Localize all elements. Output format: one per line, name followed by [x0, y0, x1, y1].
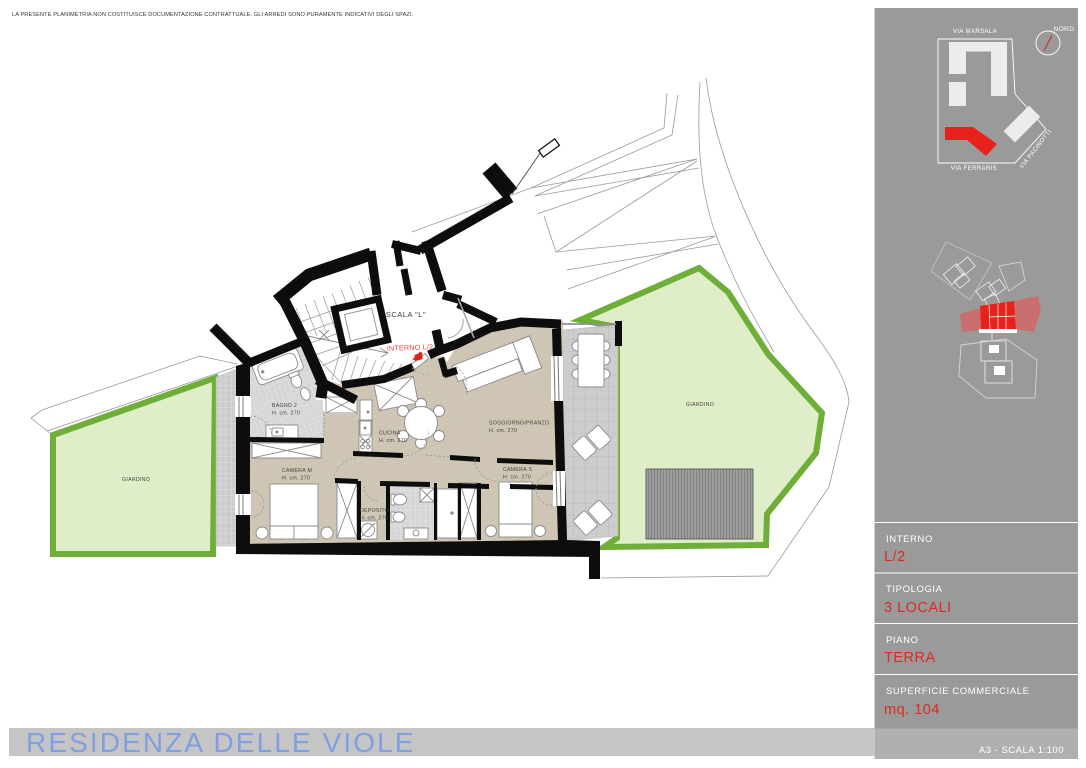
svg-text:VIA MARSALA: VIA MARSALA — [953, 29, 997, 35]
svg-text:A3 - SCALA 1:100: A3 - SCALA 1:100 — [979, 745, 1064, 756]
svg-text:L/2: L/2 — [884, 549, 906, 565]
svg-text:PIANO: PIANO — [886, 635, 919, 646]
svg-text:mq. 104: mq. 104 — [884, 702, 940, 718]
svg-text:3 LOCALI: 3 LOCALI — [884, 600, 952, 616]
svg-text:NORD: NORD — [1054, 26, 1075, 33]
svg-text:TIPOLOGIA: TIPOLOGIA — [886, 584, 943, 595]
svg-text:TERRA: TERRA — [884, 650, 936, 666]
svg-text:VIA FERRARIS: VIA FERRARIS — [951, 166, 997, 172]
svg-text:SUPERFICIE COMMERCIALE: SUPERFICIE COMMERCIALE — [886, 686, 1030, 697]
svg-text:INTERNO: INTERNO — [886, 534, 933, 545]
